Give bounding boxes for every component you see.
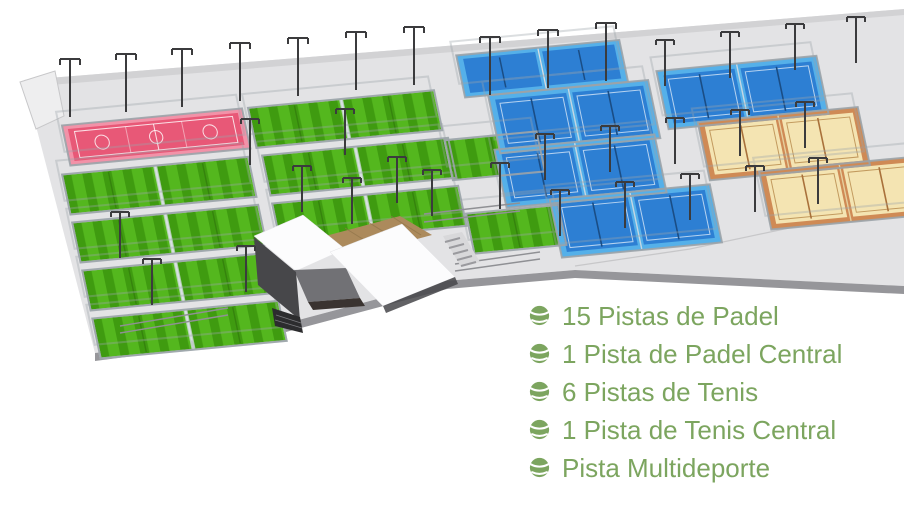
legend-item: Pista Multideporte [529,454,842,481]
legend-item-label: 15 Pistas de Padel [562,303,779,329]
legend-item-label: 1 Pista de Tenis Central [562,417,836,443]
tennis-ball-icon [529,381,550,402]
legend-item-label: Pista Multideporte [562,455,770,481]
tennis-ball-icon [529,419,550,440]
legend: 15 Pistas de Padel 1 Pista de Padel Cent… [529,302,842,481]
tennis-ball-icon [529,457,550,478]
tennis-ball-icon [529,343,550,364]
tennis-ball-icon [529,305,550,326]
legend-item: 6 Pistas de Tenis [529,378,842,405]
sports-complex-render-page: 15 Pistas de Padel 1 Pista de Padel Cent… [0,0,904,512]
legend-item: 1 Pista de Padel Central [529,340,842,367]
clubhouse-building [254,215,458,333]
legend-item-label: 1 Pista de Padel Central [562,341,842,367]
legend-item-label: 6 Pistas de Tenis [562,379,758,405]
legend-item: 1 Pista de Tenis Central [529,416,842,443]
legend-item: 15 Pistas de Padel [529,302,842,329]
